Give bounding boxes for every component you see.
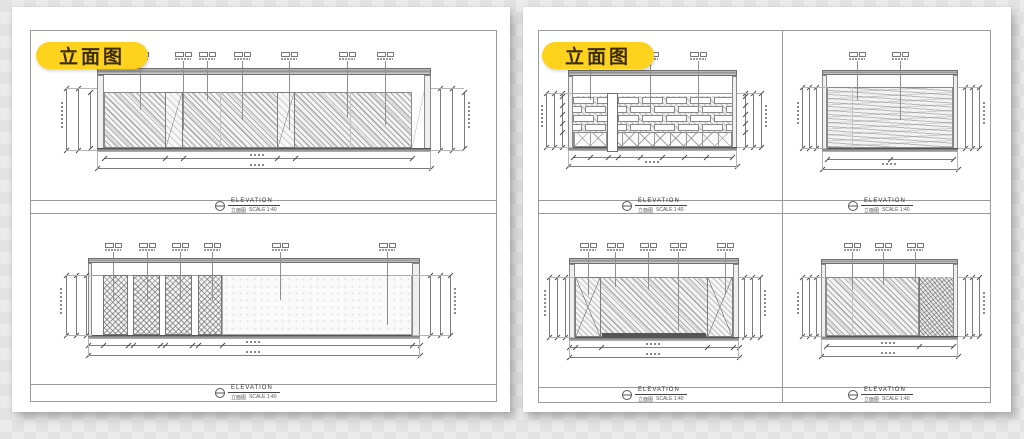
dimension-line — [569, 347, 739, 348]
leader-line — [588, 252, 589, 295]
dimension-line — [440, 88, 441, 150]
callout-box — [204, 243, 213, 248]
material-callout — [872, 243, 894, 251]
extension-line — [431, 88, 464, 89]
callout-box — [917, 243, 924, 248]
callout-box — [379, 243, 388, 248]
material-callout — [604, 243, 626, 251]
top-cap — [822, 70, 958, 75]
dimension-text — [646, 353, 662, 355]
extension-line — [546, 147, 573, 148]
dimension-line — [827, 159, 953, 160]
material-callout — [376, 243, 398, 251]
title-block: ELEVATION 立面图SCALE 1:40 — [215, 199, 280, 212]
leader-line — [698, 61, 699, 108]
dimension-line — [568, 166, 737, 167]
callout-box — [272, 243, 281, 248]
extension-line — [88, 339, 89, 357]
leader-line — [648, 252, 649, 290]
callout-text — [690, 58, 706, 60]
door-panel — [707, 277, 733, 337]
callout-text — [139, 249, 155, 251]
callout-text — [607, 249, 623, 251]
dimension-line — [972, 87, 973, 148]
dimension-text — [454, 288, 456, 314]
wood-grain-panel — [827, 87, 953, 148]
callout-text — [339, 58, 355, 60]
brick — [702, 106, 723, 113]
brick — [573, 106, 582, 113]
brick — [666, 97, 687, 104]
extension-line — [737, 147, 761, 148]
lattice-panel — [103, 275, 128, 335]
extension-line — [802, 277, 826, 278]
dimension-line — [430, 275, 431, 335]
dimension-text — [544, 290, 546, 316]
brick — [642, 97, 663, 104]
elevation-scale: SCALE 1:40 — [656, 396, 684, 403]
dimension-line — [745, 93, 746, 147]
leader-line — [650, 61, 651, 112]
callout-box — [214, 243, 221, 248]
open-panel — [222, 275, 412, 335]
dimension-line — [88, 345, 420, 346]
dimension-line — [440, 275, 441, 335]
lattice-base — [573, 132, 732, 147]
callout-box — [640, 243, 649, 248]
dimension-line — [450, 275, 451, 335]
elevation-title: ELEVATION — [635, 387, 687, 395]
dimension-line — [86, 275, 87, 335]
extension-line — [736, 151, 737, 168]
panel-joint — [350, 92, 351, 148]
dimension-line — [965, 87, 966, 148]
dimension-line — [573, 157, 732, 158]
ceiling-line — [573, 93, 732, 94]
brick-course — [573, 105, 607, 114]
dimension-text — [881, 352, 897, 354]
leader-line — [387, 252, 388, 325]
callout-text — [272, 249, 288, 251]
callout-box — [650, 243, 657, 248]
lattice-panel — [198, 275, 222, 335]
material-callout — [336, 52, 358, 60]
leader-line — [385, 61, 386, 125]
wall-post — [953, 264, 958, 340]
dimension-text — [60, 288, 62, 314]
extension-line — [802, 87, 827, 88]
material-callout — [889, 52, 911, 60]
brick — [690, 97, 711, 104]
dimension-text — [541, 103, 543, 127]
callout-box — [282, 243, 289, 248]
material-callout — [904, 243, 926, 251]
dimension-line — [802, 87, 803, 148]
dimension-text — [646, 343, 662, 345]
material-callout — [196, 52, 218, 60]
leader-line — [242, 61, 243, 120]
elevation-badge: 立面图 — [36, 42, 148, 69]
callout-box — [690, 52, 699, 57]
dimension-line — [78, 88, 79, 150]
callout-box — [859, 52, 866, 57]
dimension-text — [881, 342, 897, 344]
dimension-line — [816, 87, 817, 148]
leader-line — [140, 61, 141, 110]
extension-line — [419, 339, 420, 357]
dimension-line — [809, 277, 810, 336]
dimension-line — [972, 277, 973, 336]
elevation-title: ELEVATION — [635, 198, 687, 206]
callout-box — [185, 52, 192, 57]
brick-course — [618, 105, 732, 114]
callout-box — [907, 243, 916, 248]
dimension-line — [90, 92, 91, 148]
elevation-scale: SCALE 1:40 — [249, 394, 277, 401]
brick — [654, 106, 675, 113]
dimension-line — [753, 93, 754, 147]
callout-box — [717, 243, 726, 248]
callout-box — [175, 52, 184, 57]
elevation-scale: SCALE 1:40 — [882, 207, 910, 214]
floor-bar — [97, 148, 431, 152]
brick-panel — [618, 96, 732, 132]
brick — [714, 97, 732, 104]
wall-post — [424, 75, 431, 152]
dimension-line — [826, 346, 953, 347]
top-cap — [821, 259, 958, 264]
elevation-caption: 立面图 — [231, 207, 246, 214]
wall-post — [733, 264, 739, 341]
extension-line — [431, 150, 464, 151]
extension-line — [412, 335, 450, 336]
callout-text — [172, 249, 188, 251]
leader-line — [180, 252, 181, 300]
callout-box — [885, 243, 892, 248]
material-callout — [687, 52, 709, 60]
extension-line — [958, 277, 979, 278]
elevation-badge-label: 立面图 — [59, 42, 125, 69]
callout-box — [209, 52, 216, 57]
brick-course — [618, 114, 732, 123]
brick — [654, 124, 675, 131]
callout-box — [199, 52, 208, 57]
brick-course — [618, 123, 732, 132]
callout-text — [849, 58, 865, 60]
callout-text — [670, 249, 686, 251]
detail-marker-icon — [848, 201, 858, 211]
lattice-panel — [165, 275, 192, 335]
leader-line — [207, 61, 208, 100]
brick — [726, 124, 732, 131]
dimension-text — [246, 341, 262, 343]
material-callout — [102, 243, 124, 251]
callout-text — [875, 249, 891, 251]
extension-line — [412, 275, 450, 276]
callout-box — [590, 243, 597, 248]
dimension-text — [882, 163, 898, 165]
leader-line — [852, 252, 853, 290]
dimension-line — [97, 168, 431, 169]
divider-line — [538, 213, 991, 214]
dimension-text — [645, 161, 661, 163]
title-block: ELEVATION 立面图SCALE 1:40 — [848, 388, 913, 401]
brick — [666, 115, 687, 122]
callout-text — [640, 249, 656, 251]
dimension-line — [76, 275, 77, 335]
elevation-badge: 立面图 — [542, 42, 654, 69]
dimension-line — [760, 277, 761, 337]
material-callout — [637, 243, 659, 251]
callout-box — [115, 243, 122, 248]
material-callout — [667, 243, 689, 251]
dimension-line — [565, 277, 566, 337]
extension-line — [802, 148, 827, 149]
top-cap — [569, 258, 739, 264]
leader-line — [289, 61, 290, 130]
dimension-text — [250, 154, 266, 156]
floor-bar — [88, 335, 420, 339]
dimension-text — [468, 100, 470, 128]
callout-box — [875, 243, 884, 248]
leader-line — [113, 252, 114, 300]
elevation-caption: 立面图 — [864, 207, 879, 214]
callout-box — [680, 243, 687, 248]
panel-joint — [220, 92, 221, 148]
extension-line — [958, 336, 979, 337]
elevation-caption: 立面图 — [638, 207, 653, 214]
dimension-line — [822, 169, 958, 170]
elevation-caption: 立面图 — [231, 394, 246, 401]
callout-box — [149, 243, 156, 248]
corner-return — [412, 92, 424, 148]
callout-text — [379, 249, 395, 251]
leader-line — [678, 252, 679, 330]
brick — [630, 124, 651, 131]
dimension-text — [983, 100, 985, 124]
brick — [618, 115, 639, 122]
dimension-text — [983, 290, 985, 314]
dimension-line — [549, 277, 550, 337]
top-cap — [97, 68, 431, 75]
callout-box — [670, 243, 679, 248]
extension-line — [739, 277, 760, 278]
dimension-line — [464, 92, 465, 148]
extension-line — [957, 152, 958, 171]
material-callout — [577, 243, 599, 251]
brick-panel — [573, 96, 607, 132]
dimension-line — [965, 277, 966, 336]
brick — [618, 106, 627, 113]
dimension-text — [246, 351, 262, 353]
dimension-line — [66, 88, 67, 150]
wall-post — [732, 76, 737, 150]
callout-text — [377, 58, 393, 60]
callout-box — [182, 243, 189, 248]
elevation-scale: SCALE 1:40 — [656, 207, 684, 214]
brick — [573, 115, 594, 122]
material-callout — [201, 243, 223, 251]
detail-marker-icon — [215, 388, 225, 398]
callout-box — [854, 243, 861, 248]
dimension-line — [816, 277, 817, 336]
callout-text — [234, 58, 250, 60]
dimension-text — [797, 290, 799, 314]
leader-line — [347, 61, 348, 118]
dimension-line — [562, 93, 563, 147]
callout-box — [339, 52, 348, 57]
material-callout — [172, 52, 194, 60]
brick — [726, 106, 732, 113]
leader-line — [183, 61, 184, 130]
title-block: ELEVATION 立面图SCALE 1:40 — [622, 199, 687, 212]
callout-text — [281, 58, 297, 60]
title-block: ELEVATION 立面图SCALE 1:40 — [622, 388, 687, 401]
panel-joint — [852, 87, 853, 148]
dimension-line — [761, 93, 762, 147]
material-callout — [269, 243, 291, 251]
callout-text — [844, 249, 860, 251]
detail-marker-icon — [848, 390, 858, 400]
brick — [702, 124, 723, 131]
elevation-title: ELEVATION — [228, 385, 280, 393]
extension-line — [549, 277, 575, 278]
dimension-line — [821, 356, 958, 357]
extension-line — [430, 152, 431, 170]
extension-line — [66, 335, 92, 336]
brick — [690, 115, 711, 122]
dimension-line — [979, 277, 980, 336]
material-callout — [714, 243, 736, 251]
brick — [618, 124, 627, 131]
extension-line — [737, 93, 761, 94]
divider-line — [782, 30, 783, 403]
detail-marker-icon — [622, 390, 632, 400]
callout-box — [844, 243, 853, 248]
dimension-text — [797, 100, 799, 124]
callout-box — [349, 52, 356, 57]
dimension-text — [764, 290, 766, 316]
dimension-line — [979, 87, 980, 148]
dimension-line — [546, 93, 547, 147]
dimension-line — [88, 355, 420, 356]
dimension-line — [557, 277, 558, 337]
extension-line — [739, 337, 760, 338]
extension-line — [66, 150, 97, 151]
brick — [573, 124, 582, 131]
floor-bar — [822, 148, 958, 152]
elevation-caption: 立面图 — [638, 396, 653, 403]
extension-line — [821, 340, 822, 358]
title-block: ELEVATION 立面图SCALE 1:40 — [215, 386, 280, 399]
dimension-text — [61, 100, 63, 128]
brick — [678, 124, 699, 131]
extension-line — [568, 151, 569, 168]
brick — [597, 115, 607, 122]
leader-line — [147, 252, 148, 300]
brick — [597, 97, 607, 104]
brick-course — [573, 114, 607, 123]
elevation-title: ELEVATION — [228, 198, 280, 206]
brick — [630, 106, 651, 113]
leader-line — [615, 252, 616, 287]
top-cap — [568, 70, 737, 76]
callout-text — [204, 249, 220, 251]
title-block: ELEVATION 立面图SCALE 1:40 — [848, 199, 913, 212]
hatched-wall — [826, 277, 919, 336]
callout-text — [907, 249, 923, 251]
material-callout — [374, 52, 396, 60]
callout-box — [580, 243, 589, 248]
callout-box — [902, 52, 909, 57]
material-callout — [136, 243, 158, 251]
column — [607, 93, 618, 152]
floor-bar — [568, 147, 737, 151]
callout-text — [892, 58, 908, 60]
leader-line — [857, 61, 858, 100]
detail-marker-icon — [622, 201, 632, 211]
brick-course — [573, 123, 607, 132]
dimension-line — [452, 88, 453, 150]
leader-line — [725, 252, 726, 295]
textured-panel — [919, 277, 953, 336]
dimension-text — [250, 164, 266, 166]
callout-box — [892, 52, 901, 57]
top-cap — [88, 258, 420, 263]
callout-box — [105, 243, 114, 248]
callout-box — [172, 243, 181, 248]
callout-text — [580, 249, 596, 251]
floor-bar — [569, 337, 739, 341]
divider-line — [538, 200, 991, 201]
callout-text — [199, 58, 215, 60]
brick — [678, 106, 699, 113]
callout-box — [281, 52, 290, 57]
page-background: 立面图 ELEVATION 立面 — [0, 0, 1024, 439]
material-callout — [231, 52, 253, 60]
hatched-wall — [104, 92, 412, 148]
callout-box — [727, 243, 734, 248]
elevation-title: ELEVATION — [861, 198, 913, 206]
elevation-scale: SCALE 1:40 — [882, 396, 910, 403]
extension-line — [958, 148, 979, 149]
dimension-text — [765, 103, 767, 127]
door-panel — [277, 92, 295, 148]
brick — [618, 97, 639, 104]
leader-line — [915, 252, 916, 282]
leader-line — [280, 252, 281, 300]
brick-course — [618, 96, 732, 105]
leader-line — [883, 252, 884, 285]
elevation-scale: SCALE 1:40 — [249, 207, 277, 214]
extension-line — [549, 337, 575, 338]
callout-box — [389, 243, 396, 248]
extension-line — [738, 341, 739, 359]
callout-box — [387, 52, 394, 57]
brick — [585, 106, 606, 113]
elevation-caption: 立面图 — [864, 396, 879, 403]
dimension-line — [66, 275, 67, 335]
leader-line — [900, 61, 901, 120]
dimension-line — [752, 277, 753, 337]
material-callout — [841, 243, 863, 251]
dimension-line — [802, 277, 803, 336]
brick — [714, 115, 732, 122]
extension-line — [569, 341, 570, 359]
callout-box — [617, 243, 624, 248]
material-callout — [169, 243, 191, 251]
extension-line — [546, 93, 573, 94]
